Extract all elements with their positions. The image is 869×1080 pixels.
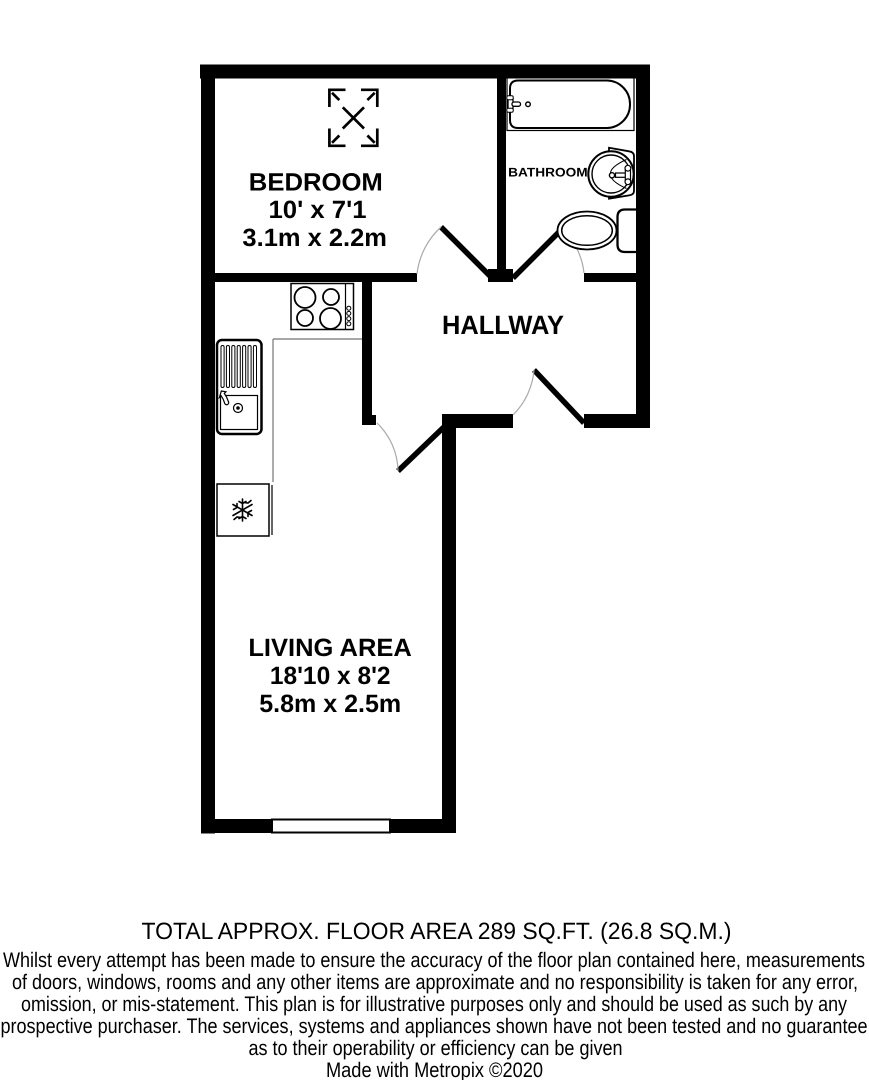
svg-text:Whilst every attempt has been: Whilst every attempt has been made to en…	[3, 949, 865, 972]
svg-text:of doors, windows, rooms and a: of doors, windows, rooms and any other i…	[12, 971, 858, 994]
svg-text:LIVING AREA: LIVING AREA	[248, 634, 412, 662]
svg-text:Made with Metropix ©2020: Made with Metropix ©2020	[326, 1059, 543, 1080]
svg-text:TOTAL APPROX. FLOOR AREA 289 S: TOTAL APPROX. FLOOR AREA 289 SQ.FT. (26.…	[142, 919, 732, 945]
svg-text:BATHROOM: BATHROOM	[508, 166, 588, 180]
svg-text:prospective purchaser. The ser: prospective purchaser. The services, sys…	[1, 1015, 868, 1038]
svg-text:5.8m x 2.5m: 5.8m x 2.5m	[259, 690, 401, 718]
svg-text:18'10 x 8'2: 18'10 x 8'2	[270, 662, 391, 690]
svg-text:3.1m x 2.2m: 3.1m x 2.2m	[242, 224, 387, 252]
svg-text:HALLWAY: HALLWAY	[442, 310, 564, 340]
svg-text:10' x 7'1: 10' x 7'1	[269, 196, 367, 224]
svg-text:BEDROOM: BEDROOM	[249, 169, 383, 197]
svg-text:as to their operability or eff: as to their operability or efficiency ca…	[249, 1037, 623, 1060]
svg-text:omission, or mis-statement. Th: omission, or mis-statement. This plan is…	[21, 993, 847, 1016]
